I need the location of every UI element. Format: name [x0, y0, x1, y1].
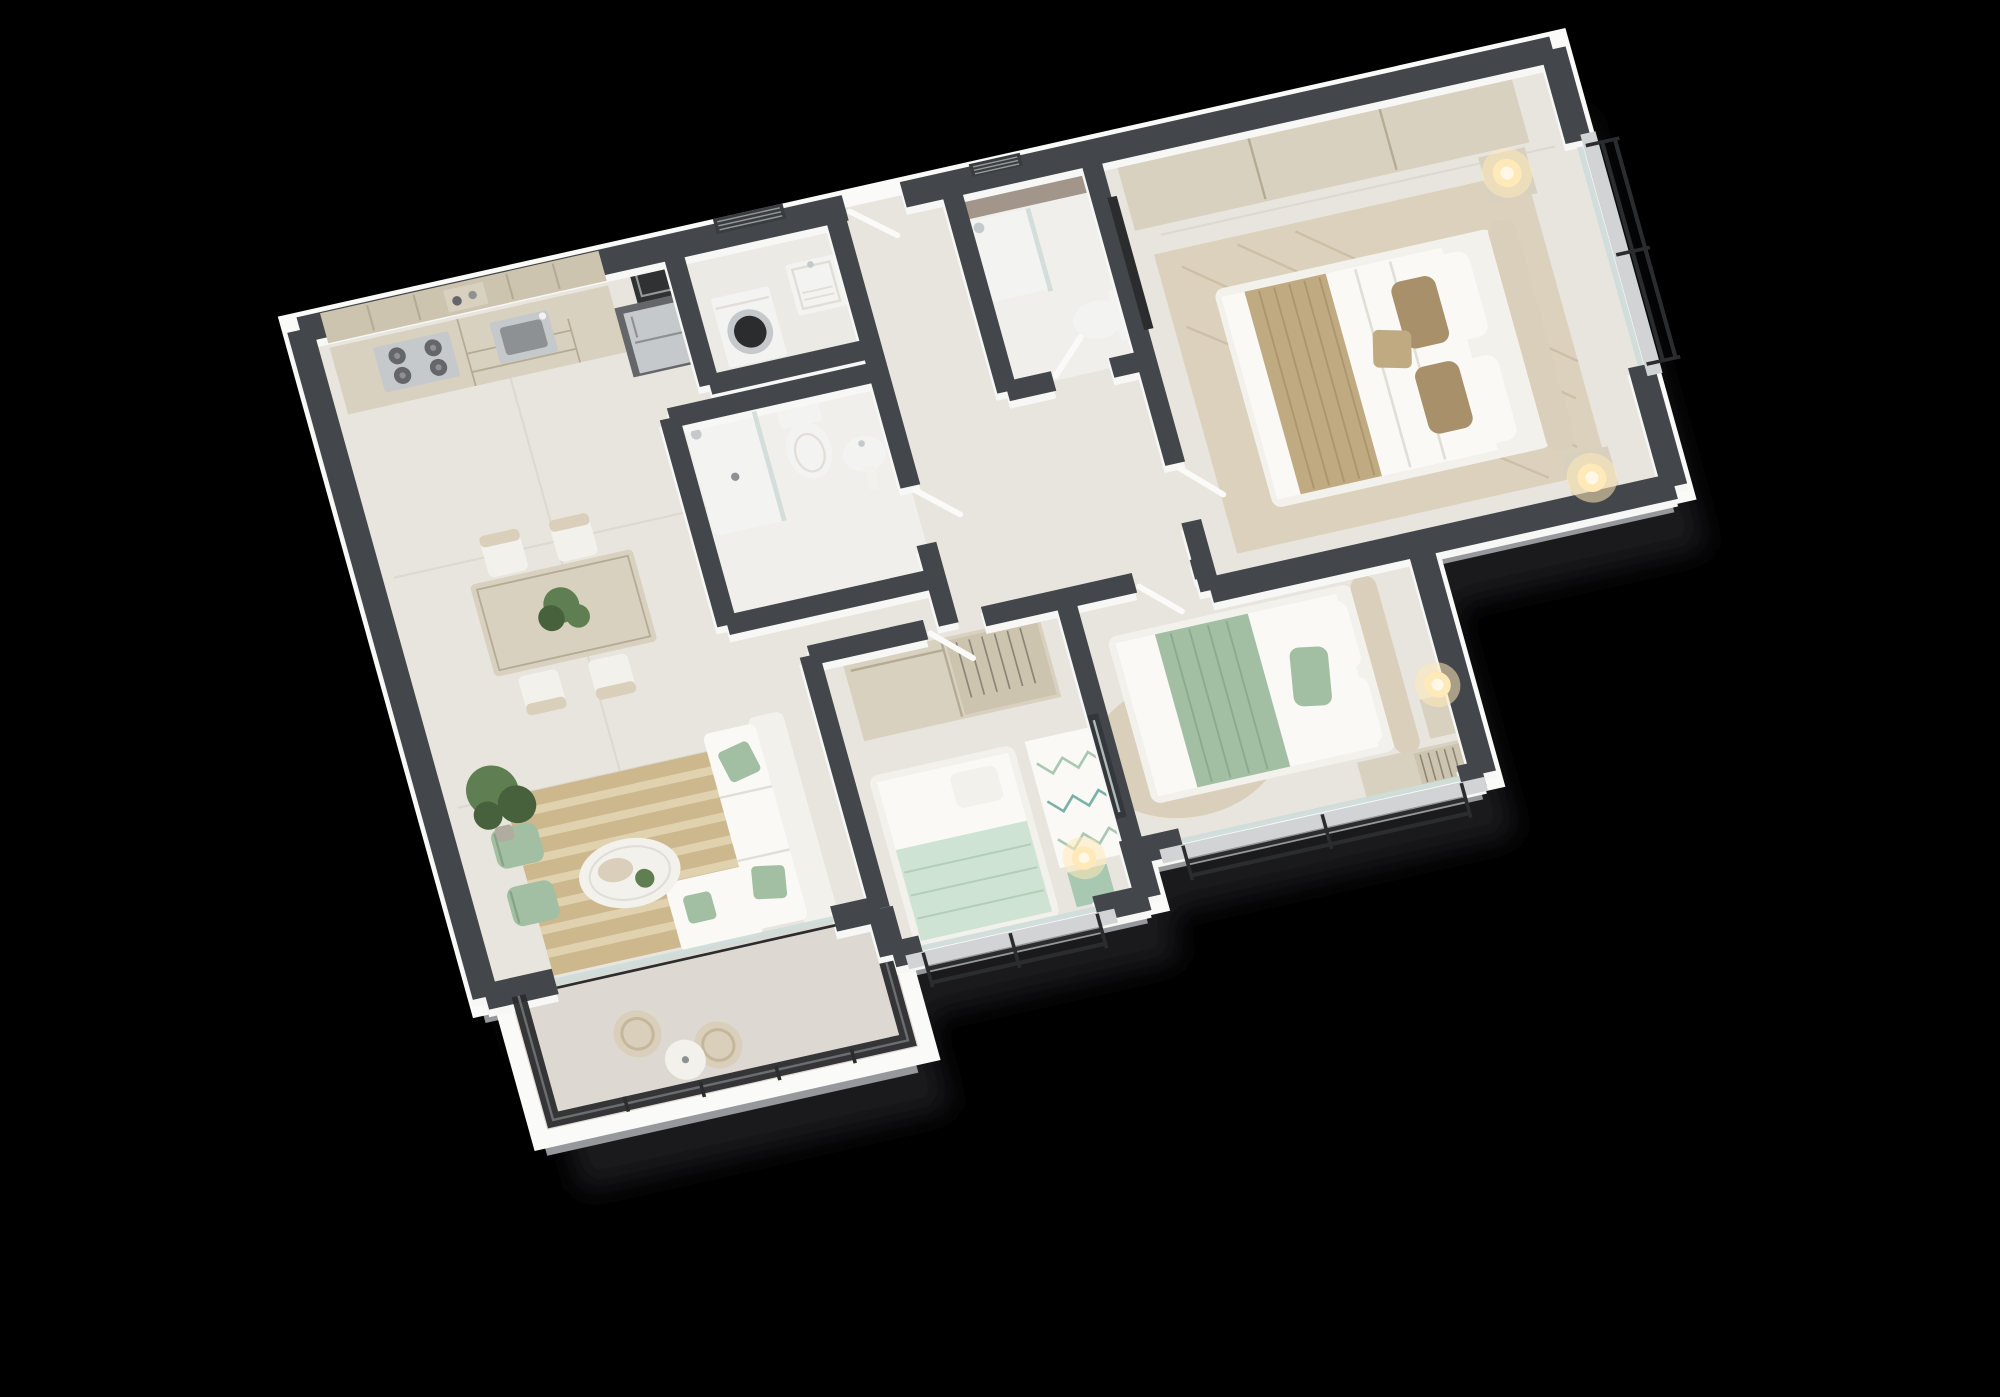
floor-plan-canvas: isometric-3d-apartment-floor-plan — [0, 0, 2000, 1397]
pillow-sage — [1289, 646, 1333, 707]
pillow-sage — [751, 865, 788, 900]
accent-cushion — [1373, 330, 1412, 369]
